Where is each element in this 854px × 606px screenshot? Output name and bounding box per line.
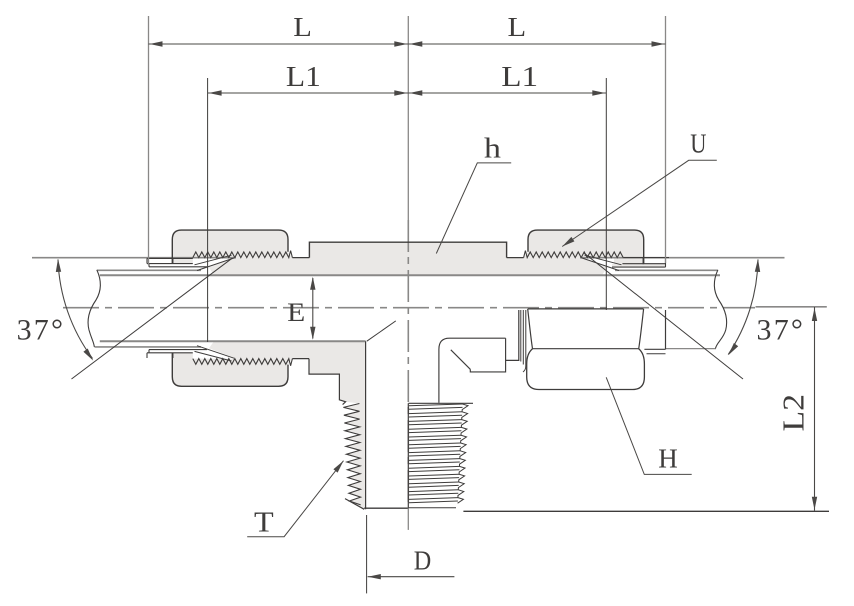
svg-text:U: U (690, 130, 706, 159)
svg-text:37°: 37° (17, 313, 66, 346)
svg-text:T: T (254, 506, 274, 538)
svg-text:h: h (484, 132, 501, 164)
svg-text:D: D (414, 545, 431, 576)
svg-text:L2: L2 (777, 394, 811, 432)
svg-text:37°: 37° (757, 313, 806, 346)
svg-text:L1: L1 (286, 60, 321, 93)
svg-text:L1: L1 (501, 60, 538, 93)
svg-text:H: H (658, 443, 678, 473)
svg-text:L: L (293, 12, 312, 42)
svg-text:L: L (508, 12, 527, 42)
svg-text:E: E (287, 299, 305, 328)
